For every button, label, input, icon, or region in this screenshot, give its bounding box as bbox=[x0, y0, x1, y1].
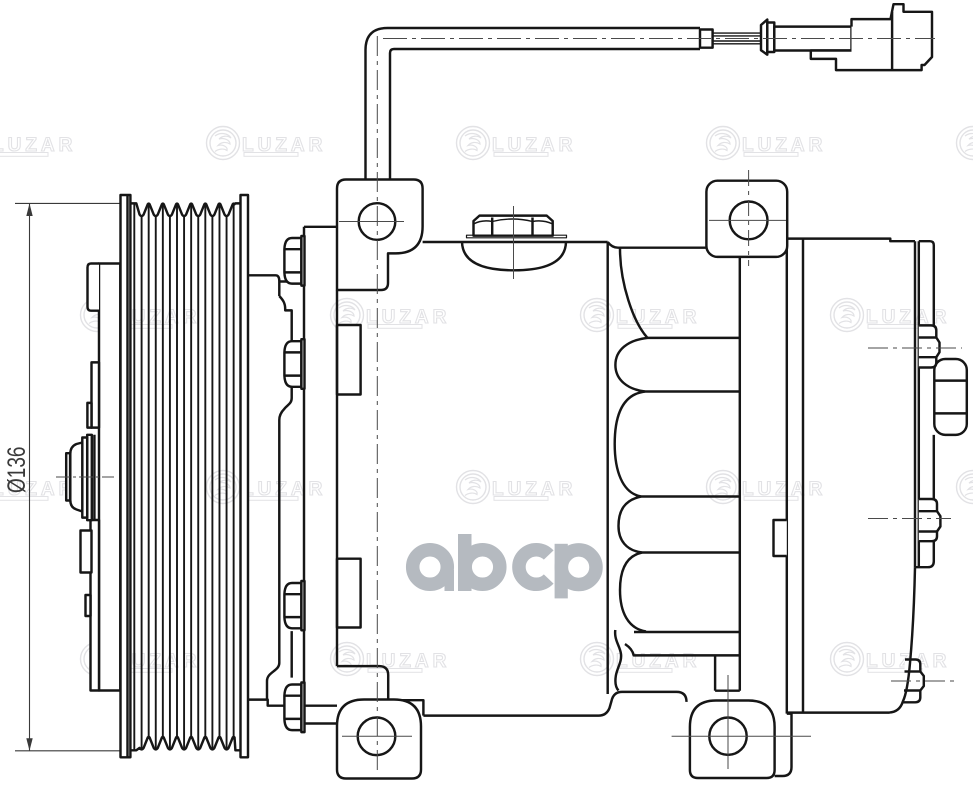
svg-text:Ø136: Ø136 bbox=[3, 447, 31, 493]
